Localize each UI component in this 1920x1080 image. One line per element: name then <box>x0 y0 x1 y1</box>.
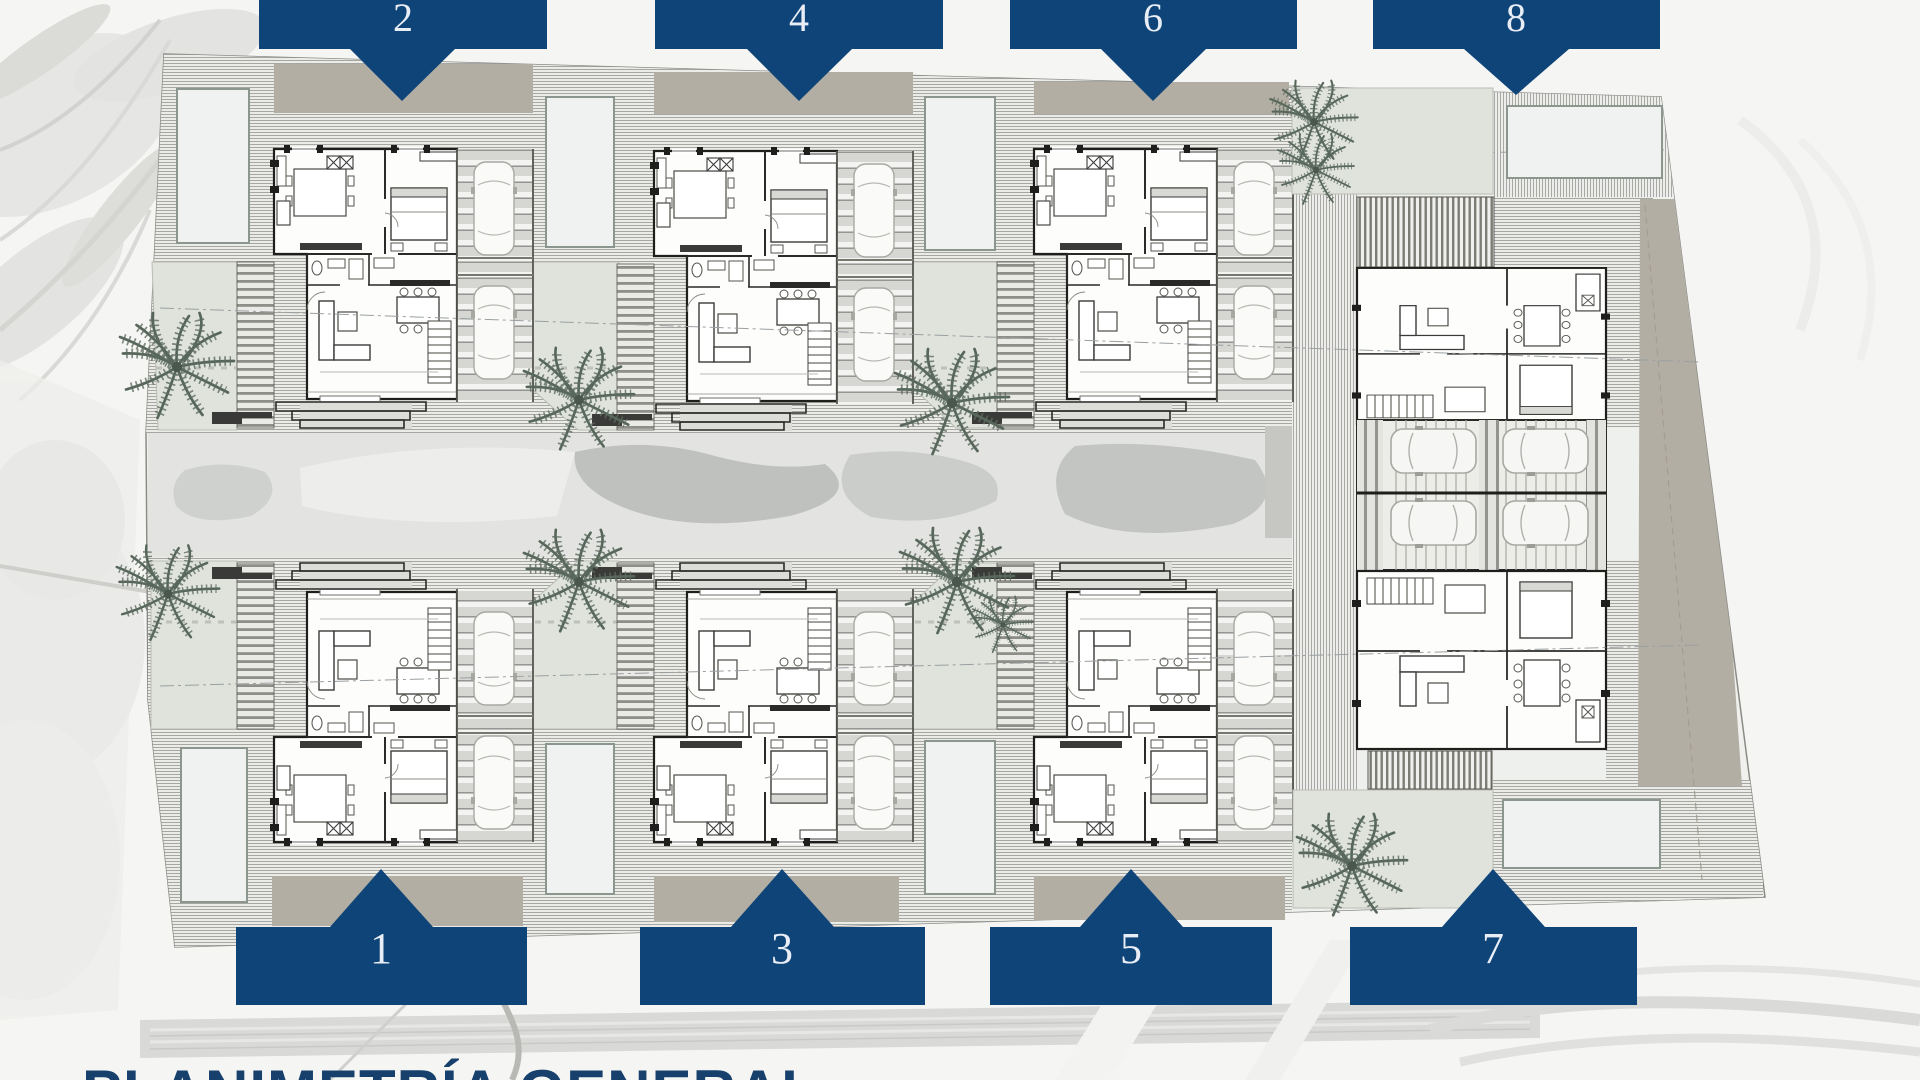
svg-text:5: 5 <box>1120 924 1142 973</box>
svg-text:3: 3 <box>771 924 793 973</box>
svg-text:2: 2 <box>393 0 413 40</box>
svg-text:4: 4 <box>789 0 809 40</box>
svg-text:8: 8 <box>1506 0 1526 40</box>
svg-text:6: 6 <box>1143 0 1163 40</box>
svg-text:PLANIMETRÍA GENERAL: PLANIMETRÍA GENERAL <box>82 1058 819 1080</box>
svg-text:1: 1 <box>370 924 392 973</box>
svg-text:7: 7 <box>1482 924 1504 973</box>
